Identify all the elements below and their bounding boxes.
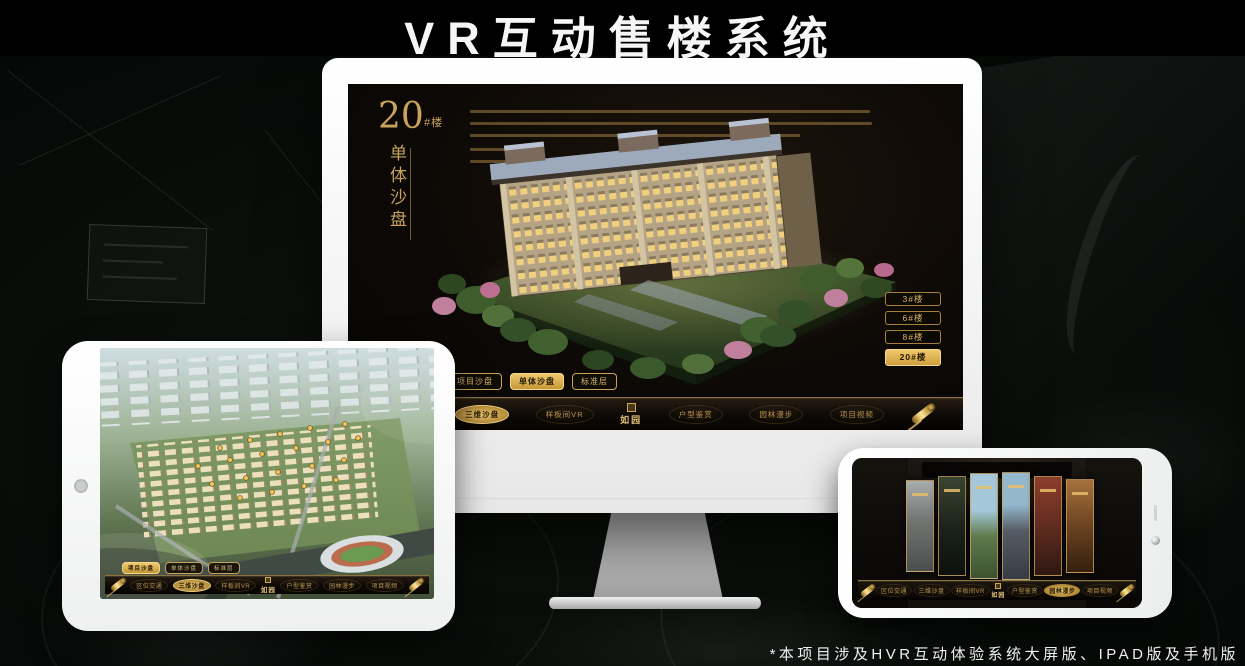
scroll-handle-icon[interactable] [1119,584,1135,598]
tablet-mode-tabs: 项目沙盘 单体沙盘 标准层 [122,562,240,574]
brand-logo-text: 如园 [991,590,1005,599]
nav-item-garden-walk[interactable]: 园林漫步 [1044,584,1080,597]
nav-item-model-room-vr[interactable]: 样板间VR [951,584,990,597]
floor-button-6[interactable]: 6#楼 [885,311,941,325]
gallery-panel[interactable] [938,476,966,576]
gallery-panel[interactable] [1034,476,1062,576]
tab-single-sandtable[interactable]: 单体沙盘 [510,373,564,390]
nav-item-garden-walk[interactable]: 园林漫步 [323,579,361,592]
phone-camera [1151,536,1160,545]
scroll-handle-icon[interactable] [408,578,424,593]
scroll-handle-icon[interactable] [911,403,936,425]
scene-gallery [906,470,1096,582]
gallery-panel[interactable] [1002,472,1030,580]
nav-item-3d-sandtable[interactable]: 三维沙盘 [173,579,211,592]
floor-selector: 3#楼 6#楼 8#楼 20#楼 [885,292,941,366]
floor-button-8[interactable]: 8#楼 [885,330,941,344]
tab-standard-floor[interactable]: 标准层 [208,562,240,574]
footnote-text: *本项目涉及HVR互动体验系统大屏版、IPAD版及手机版 [770,643,1239,664]
nav-item-project-video[interactable]: 项目视频 [1082,584,1118,597]
desktop-mode-tabs: 项目沙盘 单体沙盘 标准层 [448,373,617,390]
nav-item-unit-appreciation[interactable]: 户型鉴赏 [1007,584,1043,597]
nav-item-3d-sandtable[interactable]: 三维沙盘 [455,405,509,424]
brand-logo: 如园 [620,403,642,426]
gallery-panel[interactable] [1066,479,1094,573]
nav-item-project-video[interactable]: 项目视频 [830,405,884,424]
nav-item-location-traffic[interactable]: 区位交通 [876,584,912,597]
brand-logo-text: 如园 [261,584,276,594]
scroll-handle-icon[interactable] [109,578,125,593]
brand-seal-icon [265,577,271,583]
tablet-screen: 项目沙盘 单体沙盘 标准层 区位交通 三维沙盘 样板间VR 如园 户型鉴赏 园林… [100,348,434,599]
nav-item-model-room-vr[interactable]: 样板间VR [215,579,256,592]
brand-logo-text: 如园 [620,413,642,426]
nav-item-location-traffic[interactable]: 区位交通 [130,579,168,592]
promo-canvas: VR互动售楼系统 20 #楼 单体沙盘 [0,0,1245,666]
tab-standard-floor[interactable]: 标准层 [572,373,617,390]
gallery-panel[interactable] [906,480,934,572]
phone-speaker [1154,505,1157,521]
brand-seal-icon [995,583,1001,589]
tablet-device: 项目沙盘 单体沙盘 标准层 区位交通 三维沙盘 样板间VR 如园 户型鉴赏 园林… [62,341,455,631]
background-plaque [87,224,208,304]
nav-item-garden-walk[interactable]: 园林漫步 [749,405,803,424]
nav-item-unit-appreciation[interactable]: 户型鉴赏 [280,579,318,592]
page-title: VR互动售楼系统 [0,2,1245,67]
tablet-bottom-navbar: 区位交通 三维沙盘 样板间VR 如园 户型鉴赏 园林漫步 项目视频 [105,575,429,594]
brand-seal-icon [627,403,636,412]
tab-project-sandtable[interactable]: 项目沙盘 [448,373,502,390]
gallery-panel[interactable] [970,473,998,579]
tab-project-sandtable[interactable]: 项目沙盘 [122,562,160,574]
nav-item-unit-appreciation[interactable]: 户型鉴赏 [669,405,723,424]
scroll-handle-icon[interactable] [859,584,875,598]
floor-button-20[interactable]: 20#楼 [885,349,941,366]
tablet-camera [74,479,88,493]
phone-device: 区位交通 三维沙盘 样板间VR 如园 户型鉴赏 园林漫步 项目视频 [838,448,1172,618]
monitor-stand-neck [593,513,723,600]
monitor-stand-foot [549,597,761,609]
nav-item-project-video[interactable]: 项目视频 [366,579,404,592]
phone-screen: 区位交通 三维沙盘 样板间VR 如园 户型鉴赏 园林漫步 项目视频 [852,458,1142,608]
nav-item-model-room-vr[interactable]: 样板间VR [536,405,594,424]
nav-item-3d-sandtable[interactable]: 三维沙盘 [914,584,950,597]
floor-button-3[interactable]: 3#楼 [885,292,941,306]
brand-logo: 如园 [991,583,1005,599]
brand-logo: 如园 [261,577,276,594]
tab-single-sandtable[interactable]: 单体沙盘 [165,562,203,574]
phone-bottom-navbar: 区位交通 三维沙盘 样板间VR 如园 户型鉴赏 园林漫步 项目视频 [858,580,1136,600]
